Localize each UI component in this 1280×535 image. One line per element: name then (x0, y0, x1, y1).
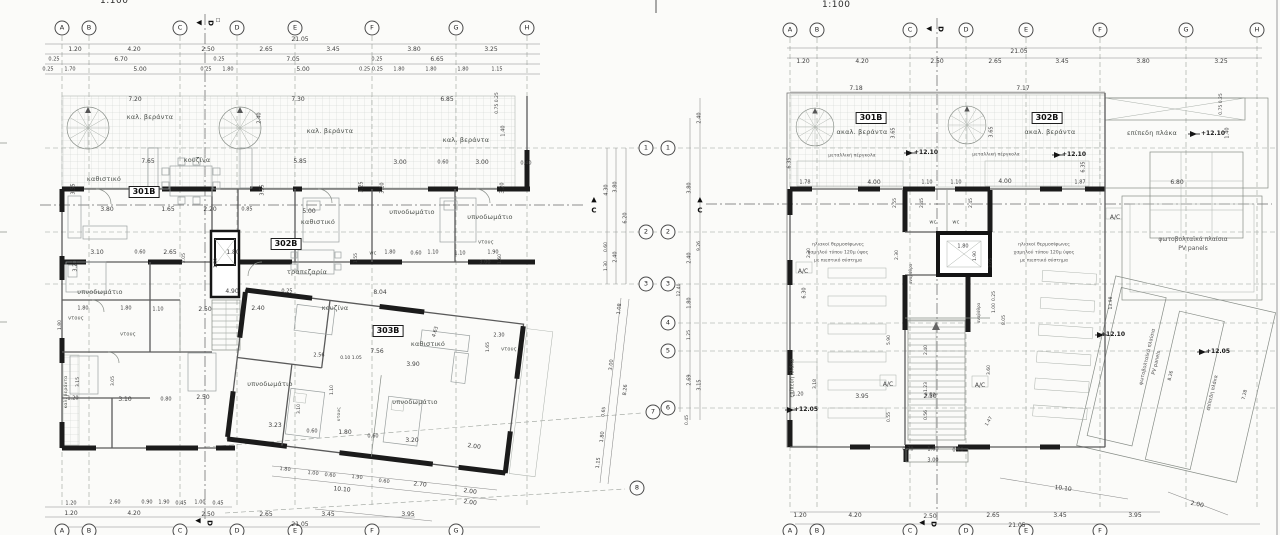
grid-bubble: F (365, 21, 380, 36)
dim-label: 10.10 (333, 486, 351, 493)
dim-label: 13.98 (1110, 297, 1115, 310)
dim-label: 0.60 (410, 252, 421, 257)
unit-label: 302B (271, 238, 302, 250)
grid-bubble: E (1019, 23, 1034, 38)
dim-label: 1.47 (986, 417, 995, 428)
dim-label: 3.00 (475, 160, 488, 166)
dim-label: 3.00 (393, 160, 406, 166)
dim-label: 4.00 (998, 179, 1011, 185)
grid-bubble: 5 (661, 344, 676, 359)
grid-bubble: G (449, 21, 464, 36)
grid-bubble: F (365, 524, 380, 535)
note-label: ηλιακοί θερμοσίφωνες (812, 244, 864, 249)
dim-label: 1.20 (64, 511, 77, 517)
dim-label: 3.45 (1053, 513, 1066, 519)
dim-label: 21.05 (1008, 523, 1025, 529)
grid-bubble: C (903, 23, 918, 38)
dim-label: 1.80 (425, 68, 436, 73)
dim-label: 0.25 (371, 58, 382, 63)
dim-label: 1.10 (427, 251, 438, 256)
dim-label: 7.18 (849, 86, 862, 92)
dim-label: 0.25 (42, 68, 53, 73)
dim-label: 0.45 (212, 502, 223, 507)
dim-label: 1.20 (796, 59, 809, 65)
dim-label: 1.10 (331, 385, 336, 395)
dim-label: 2.55 (894, 198, 899, 208)
dim-label: 1.40 (502, 125, 507, 136)
dim-label: 1.87 (1074, 181, 1085, 186)
dim-label: 0.75 0.25 (1220, 93, 1225, 114)
section-marker: ◀ (919, 520, 924, 527)
dim-label: 1.80 (688, 297, 693, 308)
dim-label: 2.20 (203, 207, 216, 213)
dim-label: 1.15 (491, 68, 502, 73)
dim-label: 1.80 (338, 430, 351, 436)
unit-label: 302B (1032, 112, 1063, 124)
dim-label: 6.30 (803, 287, 808, 298)
unit-label: 301B (856, 112, 887, 124)
dim-label: 1.70 (64, 68, 75, 73)
grid-bubble: C (173, 524, 188, 535)
note-label: PV panels (1178, 246, 1207, 252)
grid-bubble: B (82, 524, 97, 535)
dim-label: 1.20 (792, 393, 803, 398)
dim-label: A/C (883, 382, 893, 388)
dim-label: A/C (1110, 215, 1120, 221)
room-label: ντους (501, 348, 517, 353)
dim-label: 0.60 (324, 473, 336, 479)
elevation-label: +12.05 (794, 407, 818, 413)
note-label: χαμηλού τύπου 120μ ύψος (1014, 252, 1075, 257)
dim-label: 8.05 (1003, 315, 1008, 325)
dim-label: 4.90 (225, 289, 238, 295)
section-marker: ▲ (591, 197, 596, 204)
dim-label: 3.20 (501, 182, 506, 193)
dim-label: 10.10 (1054, 485, 1072, 493)
grid-bubble: 4 (661, 316, 676, 331)
dim-label: 3.00 (927, 459, 938, 464)
grid-bubble: D (230, 21, 245, 36)
dim-label: 3.45 (1055, 59, 1068, 65)
dim-label: 1.60 (499, 254, 504, 264)
dim-label: 3.00 (609, 359, 615, 371)
dim-label: 2.50 (923, 514, 936, 520)
room-label: τραπεζαρία (287, 269, 327, 276)
grid-bubble: 8 (630, 481, 645, 496)
dim-label: 4.20 (127, 47, 140, 53)
elevation-label: +12.10 (1101, 332, 1125, 338)
dim-label: 0.25 (281, 290, 292, 295)
dim-label: 6.35 (1082, 161, 1087, 172)
dim-label: 3.25 (1214, 59, 1227, 65)
section-marker: ▲ (697, 197, 702, 204)
dim-label: 1.25 (688, 330, 693, 340)
dim-label: 3.20 (405, 438, 418, 444)
dim-label: 0.45 (686, 415, 691, 425)
dim-label: 2.40 (688, 252, 693, 263)
dim-label: 3.15 (698, 379, 703, 390)
dim-label: 0.56 (925, 410, 930, 420)
dim-label: 6.85 (440, 97, 453, 103)
dim-label: 1.23 (925, 382, 930, 392)
dim-label: 3.23 (268, 423, 281, 429)
note-label: αναβάθρα (977, 303, 981, 323)
dim-label: 4.00 (867, 180, 880, 186)
grid-bubble: 6 (661, 401, 676, 416)
note-label: φωτοβολταϊκά πλαίσια (1158, 237, 1227, 243)
dim-label: 0.65 (602, 407, 608, 418)
section-marker: ◀ (195, 518, 200, 525)
dim-label: 2.00 (463, 499, 477, 507)
grid-bubble: 7 (646, 405, 661, 420)
grid-bubble: C (903, 524, 918, 535)
dim-label: 3.55 (72, 183, 77, 194)
dim-label: 3.80 (407, 47, 420, 53)
note-label: ηλιακοί θερμοσίφωνες (1018, 244, 1070, 249)
section-marker: ◀ (196, 20, 201, 27)
dim-label: 2.65 (986, 513, 999, 519)
dim-label: 2.65 (163, 250, 176, 256)
dim-label: 7.30 (291, 97, 304, 103)
dim-label: 1.80 (226, 250, 239, 256)
dim-label: 3.10 (381, 182, 386, 193)
dim-label: 3.95 (855, 394, 868, 400)
dim-label: 0.85 (241, 208, 252, 213)
section-marker: □ (216, 19, 221, 24)
room-label: καλ. βεράντα (127, 114, 173, 121)
dim-label: 2.56 (313, 354, 324, 359)
dim-label: 1.80 (457, 68, 468, 73)
dim-label: 7.05 (286, 57, 299, 63)
dim-label: 3.45 (326, 47, 339, 53)
dim-label: 7.56 (370, 349, 383, 355)
room-label: ακαλ. βεράντα (1025, 129, 1076, 136)
dim-label: 0.60 (306, 430, 317, 435)
dim-label: 2.65 (988, 59, 1001, 65)
grid-bubble: G (1179, 23, 1194, 38)
dim-label: 6.70 (114, 57, 127, 63)
section-marker: C (697, 208, 702, 215)
dim-label: 3.00 (479, 261, 490, 266)
note-label: επίπεδη πλάκα (1206, 375, 1219, 412)
annotation-layer: ABCDEFGHABCDEFG12378123456ABCDEFGHABCDEF… (0, 0, 1280, 535)
room-label: wc (929, 221, 936, 226)
dim-label: 1.10 (921, 181, 932, 186)
grid-bubble: D (230, 524, 245, 535)
dim-label: 2.40 (698, 112, 703, 123)
dim-label: 2.45 (921, 198, 926, 208)
dim-label: 3.05 (112, 376, 117, 386)
room-label: υπνοδωμάτιο (247, 381, 292, 388)
grid-bubble: C (173, 21, 188, 36)
note-label: αναβάθρα (909, 264, 913, 284)
note-label: μεταλλική πέργκολα (828, 155, 875, 160)
dim-label: 1.20 (793, 513, 806, 519)
dim-label: 4.20 (127, 511, 140, 517)
room-label: ακαλ. βεράντα (837, 129, 888, 136)
dim-label: 1.65 (161, 207, 174, 213)
dim-label: 2.40 (258, 112, 263, 123)
dim-label: 2.40 (251, 306, 264, 312)
note-label: PV panels (1152, 350, 1162, 375)
dim-label: 1.20 (67, 397, 78, 402)
dim-label: 0.25 (213, 58, 224, 63)
room-label: ντους (120, 333, 136, 338)
dim-label: 0.70 (902, 448, 913, 453)
dim-label: 3.95 (401, 512, 414, 518)
dim-label: 21.05 (1010, 49, 1027, 55)
dim-label: 1.80 (384, 251, 395, 256)
dim-label: 21.05 (291, 522, 308, 528)
dim-label: 1.20 (65, 502, 76, 507)
dim-label: 1.80 (120, 307, 131, 312)
dim-label: 2.69 (688, 374, 693, 385)
dim-label: 0.90 (141, 501, 152, 506)
dim-label: 5.90 (888, 335, 893, 345)
room-label: υπνοδωμάτιο (389, 209, 434, 216)
dim-label: 1.90 (974, 251, 979, 261)
dim-label: 1.80 (393, 68, 404, 73)
dim-label: 2.45 (970, 198, 975, 208)
dim-label: 5.85 (293, 159, 306, 165)
room-label: υπνοδωμάτιο (392, 399, 437, 406)
dim-label: 4.20 (848, 513, 861, 519)
dim-label: 1.00 (194, 501, 205, 506)
dim-label: 0.60 (134, 251, 145, 256)
grid-bubble: 2 (639, 225, 654, 240)
dim-label: 2.50 (923, 394, 936, 400)
grid-bubble: G (449, 524, 464, 535)
dim-label: 2.50 (201, 47, 214, 53)
dim-label: 5.00 (302, 209, 315, 215)
dim-label: 3.10 (118, 397, 131, 403)
dim-label: 3.55 (261, 184, 266, 195)
dim-label: 0.40 (520, 162, 531, 167)
grid-bubble: B (82, 21, 97, 36)
dim-label: 2.00 (463, 488, 477, 496)
dim-label: 0.10 1.05 (340, 357, 361, 362)
section-marker: D (930, 521, 937, 527)
dim-label: 1.80 (279, 467, 291, 473)
grid-bubble: D (959, 524, 974, 535)
dim-label: 1.65 (487, 342, 492, 352)
dim-label: 0.45 (175, 502, 186, 507)
dim-label: 7.28 (1243, 390, 1250, 401)
dim-label: 7.20 (128, 97, 141, 103)
room-label: καλ. βεράντα (65, 376, 70, 409)
dim-label: 3.25 (484, 47, 497, 53)
unit-label: 301B (129, 186, 160, 198)
dim-label: 9.26 (698, 241, 703, 251)
dim-label: 3.80 (1136, 59, 1149, 65)
dim-label: 1.80 (59, 320, 64, 330)
dim-label: 1.10 (152, 308, 163, 313)
dim-label: 2.50 (201, 512, 214, 518)
dim-label: 2.40 (925, 345, 930, 355)
dim-label: 6.35 (788, 157, 793, 168)
dim-label: 2.05 (183, 253, 188, 263)
dim-label: A/C (798, 269, 808, 275)
dim-label: 1.08 (617, 303, 623, 315)
dim-label: 0.25 (993, 291, 998, 301)
grid-bubble: A (783, 524, 798, 535)
section-marker: C (591, 208, 596, 215)
dim-label: 2.50 (196, 395, 209, 401)
dim-label: 6.20 (624, 212, 629, 223)
dim-label: 21.05 (291, 37, 308, 43)
grid-bubble: F (1093, 524, 1108, 535)
dim-label: 1.90 (351, 475, 363, 481)
dim-label: 3.80 (100, 207, 113, 213)
dim-label: 3.10 (90, 250, 103, 256)
grid-bubble: A (55, 21, 70, 36)
dim-label: 1.00 (307, 471, 319, 477)
dim-label: 3.65 (892, 127, 897, 138)
dim-label: 0.55 (888, 412, 893, 422)
section-marker: D (206, 520, 213, 526)
grid-bubble: A (55, 524, 70, 535)
dim-label: 3.90 (406, 362, 419, 368)
room-label: wc (952, 221, 959, 226)
floor-plan-sheet: 1:100 1:100 ABCDEFGHABCDEFG12378123456AB… (0, 0, 1280, 535)
dim-label: 1.10 (454, 252, 465, 257)
dim-label: 3.80 (614, 181, 619, 192)
dim-label: 3.18 (814, 379, 819, 389)
dim-label: 2.50 (930, 59, 943, 65)
dim-label: 8.26 (623, 384, 629, 396)
dim-label: 3.80 (688, 182, 693, 193)
dim-label: 2.70 (413, 481, 427, 488)
dim-label: 0.60 (605, 242, 610, 252)
dim-label: 3.60 (988, 365, 993, 375)
dim-label: 8.04 (373, 290, 386, 296)
room-label: επίπεδη πλάκα (1127, 130, 1177, 137)
dim-label: 12.40 (678, 284, 683, 297)
dim-label: 0.25 (200, 68, 211, 73)
dim-label: 3.05 (990, 258, 995, 268)
grid-bubble: B (810, 23, 825, 38)
section-marker: D (207, 20, 214, 26)
dim-label: 1.80 (77, 307, 88, 312)
note-label: μεταλλική πέργκολα (972, 154, 1019, 159)
dim-label: 1.90 (158, 501, 169, 506)
dim-label: 7.65 (141, 159, 154, 165)
dim-label: 4.20 (855, 59, 868, 65)
dim-label: 1.00 (993, 303, 998, 313)
room-label: υπνοδωμάτιο (77, 289, 122, 296)
elevation-label: +12.05 (1206, 349, 1230, 355)
room-label: ντους (68, 317, 84, 322)
dim-label: 1.50 (215, 258, 220, 268)
dim-label: 1.78 (799, 181, 810, 186)
dim-label: 4.30 (605, 184, 610, 195)
dim-label: 7.17 (1016, 86, 1029, 92)
dim-label: 1.20 (68, 47, 81, 53)
section-marker: ◀ (926, 26, 931, 33)
dim-label: 3.15 (77, 377, 82, 387)
dim-label: 2.65 (259, 512, 272, 518)
dim-label: 6.65 (430, 57, 443, 63)
dim-label: 2.30 (896, 250, 901, 260)
dim-label: 1.15 (596, 457, 602, 469)
elevation-label: +12.10 (1062, 152, 1086, 158)
unit-label: 303B (373, 325, 404, 337)
dim-label: 1.30 (605, 261, 610, 271)
dim-label: 2.00 (1190, 501, 1204, 510)
dim-label: 3.45 (321, 512, 334, 518)
dim-label: 0.70 (952, 449, 963, 454)
dim-label: 2.65 (259, 47, 272, 53)
dim-label: 2.00 (467, 443, 481, 451)
grid-bubble: 3 (639, 277, 654, 292)
dim-label: 6.80 (1170, 180, 1183, 186)
grid-bubble: 3 (661, 277, 676, 292)
note-label: χαμηλού τύπου 120μ ύψος (808, 252, 869, 257)
dim-label: 0.80 (160, 398, 171, 403)
dim-label: 3.20 (74, 260, 79, 271)
dim-label: A/C (975, 383, 985, 389)
dim-label: 1.60 (927, 448, 938, 453)
elevation-label: +12.10 (1201, 131, 1225, 137)
note-label: με πιεστικό σύστημα (814, 260, 862, 265)
dim-label: 1.10 (950, 181, 961, 186)
dim-label: 1.80 (957, 245, 968, 250)
section-marker: D (937, 26, 944, 32)
dim-label: 1.80 (600, 431, 606, 443)
dim-label: 0.60 (437, 161, 448, 166)
dim-label: 3.10 (298, 404, 303, 414)
grid-bubble: E (288, 21, 303, 36)
dim-label: 4.63 (432, 326, 440, 338)
dim-label: 2.30 (493, 334, 504, 339)
dim-label: 0.25 (48, 58, 59, 63)
note-label: με πιεστικό σύστημα (1020, 260, 1068, 265)
dim-label: 3.65 (990, 126, 995, 137)
dim-label: 2.40 (614, 251, 619, 262)
room-label: ντους (338, 407, 343, 421)
dim-label: 0.60 (378, 479, 390, 485)
dim-label: 2.50 (198, 307, 211, 313)
dim-label: 3.25 (360, 181, 365, 192)
dim-label: 2.60 (109, 501, 120, 506)
room-label: καθιστικό (411, 341, 445, 348)
room-label: καλ. βεράντα (443, 137, 489, 144)
grid-bubble: F (1093, 23, 1108, 38)
dim-label: 0.75 0.25 (496, 92, 501, 113)
room-label: κουζίνα (322, 305, 349, 312)
dim-label: 8.26 (1169, 371, 1176, 382)
grid-bubble: 1 (661, 141, 676, 156)
grid-bubble: B (810, 524, 825, 535)
dim-label: 1.80 (222, 68, 233, 73)
room-label: καθιστικό (301, 219, 335, 226)
room-label: κουζίνα (184, 157, 211, 164)
elevation-label: +12.10 (914, 150, 938, 156)
grid-bubble: H (520, 21, 535, 36)
grid-bubble: 2 (661, 225, 676, 240)
dim-label: 3.95 (1128, 513, 1141, 519)
dim-label: 1.55 (355, 253, 360, 263)
room-label: καθιστικό (87, 176, 121, 183)
room-label: καλ. βεράντα (307, 128, 353, 135)
grid-bubble: A (783, 23, 798, 38)
grid-bubble: D (959, 23, 974, 38)
room-label: ντους (478, 241, 494, 246)
room-label: υπνοδωμάτιο (467, 214, 512, 221)
dim-label: 5.00 (133, 67, 146, 73)
dim-label: 0.25 0.25 (359, 68, 383, 73)
grid-bubble: 1 (639, 141, 654, 156)
